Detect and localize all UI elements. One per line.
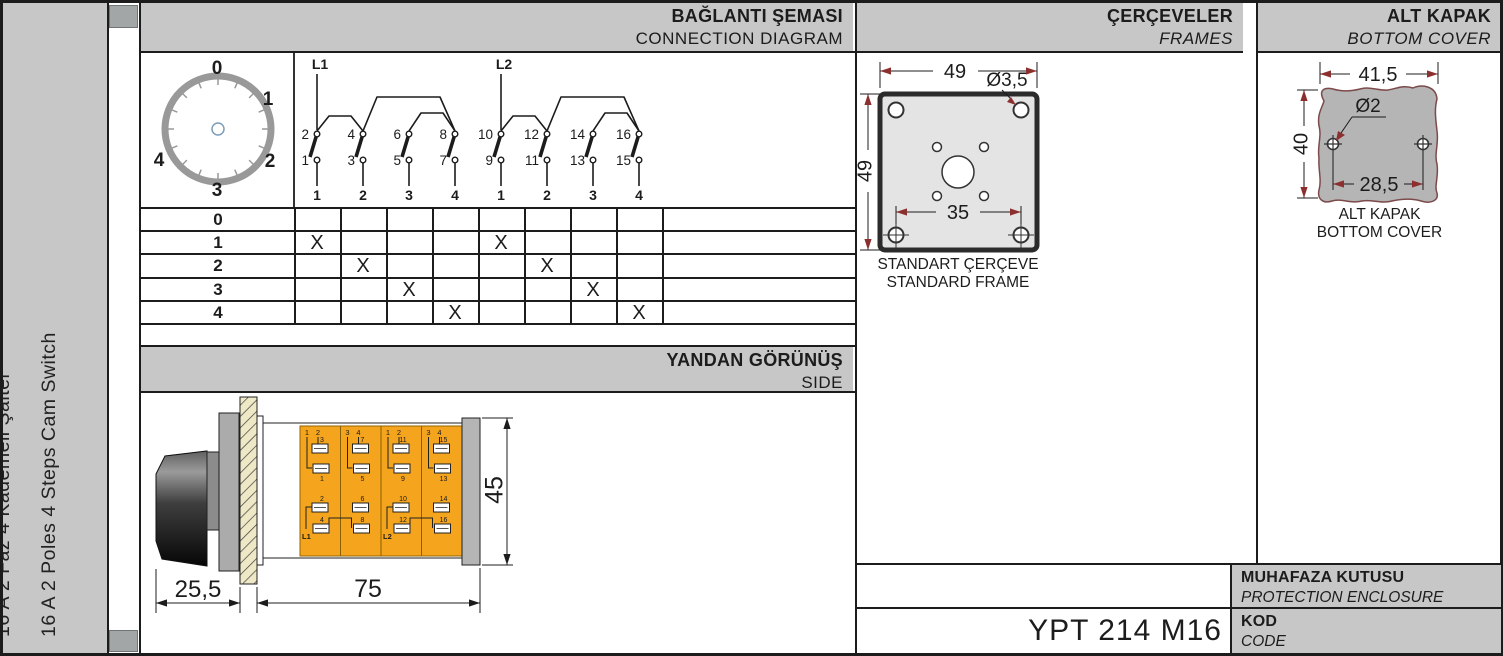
terminal-bottom xyxy=(590,157,596,163)
arrow-up xyxy=(1300,90,1307,101)
terminal-top xyxy=(452,131,458,137)
connection-diagram-drawing: 01234 L1211432653874L2109112112141331615… xyxy=(141,53,855,207)
knob-hub xyxy=(207,452,220,530)
arrow-left xyxy=(1320,70,1331,77)
table-column-line xyxy=(294,207,296,325)
arrow-down xyxy=(864,239,871,250)
terminal-number: 1 xyxy=(320,476,324,483)
table-row-line xyxy=(141,323,855,325)
shaft-hole xyxy=(942,156,974,188)
terminal-number: 2 xyxy=(320,496,324,503)
dial-tick xyxy=(235,83,237,89)
terminal-number-bottom: 3 xyxy=(347,153,355,168)
enclosure-label-cell: MUHAFAZA KUTUSU PROTECTION ENCLOSURE xyxy=(1232,565,1501,607)
terminal-number: 9 xyxy=(401,476,405,483)
frames-title-tr: ÇERÇEVELER xyxy=(857,5,1233,28)
pole-number: 4 xyxy=(635,187,643,203)
connection-diagram-header: BAĞLANTI ŞEMASI CONNECTION DIAGRAM xyxy=(141,3,853,51)
table-position-label: 3 xyxy=(198,279,238,301)
arrow-right xyxy=(1026,67,1037,74)
cover-caption-en: BOTTOM COVER xyxy=(1258,224,1501,242)
cover-caption-tr: ALT KAPAK xyxy=(1258,206,1501,224)
table-column-line xyxy=(524,207,526,325)
terminal-number-top: 2 xyxy=(301,127,309,142)
table-column-line xyxy=(570,207,572,325)
contact-schematic: L1211432653874L21091121121413316154 xyxy=(301,56,643,203)
frames-header: ÇERÇEVELER FRAMES xyxy=(857,3,1243,51)
dim-hole-text: Ø3,5 xyxy=(986,70,1027,91)
product-title-english: 16 A 2 Poles 4 Steps Cam Switch xyxy=(38,332,61,637)
terminal-number: 6 xyxy=(361,496,365,503)
cover-caption: ALT KAPAK BOTTOM COVER xyxy=(1258,206,1501,242)
side-title-tr: YANDAN GÖRÜNÜŞ xyxy=(141,349,843,372)
contact-blade xyxy=(494,136,501,158)
stage-pole-label: 4 xyxy=(437,428,441,437)
dial-tick xyxy=(199,83,201,89)
terminal-number-top: 4 xyxy=(347,127,355,142)
table-row-line xyxy=(141,207,855,209)
frame-caption-en: STANDARD FRAME xyxy=(857,274,1059,292)
terminal-number-bottom: 15 xyxy=(616,153,631,168)
contact-blade xyxy=(586,136,593,158)
corner-hole xyxy=(889,103,904,118)
terminal-number: 15 xyxy=(440,437,448,444)
dial-tick xyxy=(183,94,187,98)
table-row-line xyxy=(141,300,855,302)
terminal-number-bottom: 5 xyxy=(393,153,401,168)
dial-position-label: 0 xyxy=(212,58,223,79)
arrow-down xyxy=(503,554,510,565)
terminal-bottom xyxy=(314,157,320,163)
stage-feed-label: L2 xyxy=(383,532,392,541)
table-closed-mark: X xyxy=(302,231,332,255)
dim-body-text: 75 xyxy=(354,575,382,603)
side-view-drawing: 123124L1347568121191012L23415131416 25,5… xyxy=(141,393,855,652)
pole-number: 1 xyxy=(497,187,505,203)
contact-blade xyxy=(402,136,409,158)
terminal-bottom xyxy=(406,157,412,163)
terminal-top xyxy=(498,131,504,137)
arrow-up xyxy=(864,94,871,105)
terminal-top xyxy=(636,131,642,137)
dial-position-label: 4 xyxy=(154,150,165,171)
connection-title-tr: BAĞLANTI ŞEMASI xyxy=(141,5,843,28)
mounting-panel-hatched xyxy=(240,397,257,584)
contact-blade xyxy=(448,136,455,158)
enclosure-label-en: PROTECTION ENCLOSURE xyxy=(1241,588,1501,607)
dial-ring xyxy=(165,76,271,182)
datasheet-page: { "sidebar": { "line_tr": "16 A 2 Faz 4 … xyxy=(0,0,1503,656)
terminal-number-top: 14 xyxy=(570,127,586,142)
arrow-down xyxy=(1300,187,1307,198)
terminal-number-top: 16 xyxy=(616,127,631,142)
table-column-line xyxy=(662,207,664,325)
contact-blade xyxy=(356,136,363,158)
pilot-hole xyxy=(933,192,942,201)
table-closed-mark: X xyxy=(440,301,470,325)
terminal-number: 4 xyxy=(320,517,324,524)
stage-pole-label: 3 xyxy=(426,428,430,437)
table-position-label: 0 xyxy=(198,209,238,231)
dim-width-text: 49 xyxy=(944,61,966,83)
bottom-cover-title-en: BOTTOM COVER xyxy=(1258,28,1491,49)
terminal-number: 3 xyxy=(320,437,324,444)
pole-number: 1 xyxy=(313,187,321,203)
table-closed-mark: X xyxy=(578,278,608,302)
pole-number: 3 xyxy=(405,187,413,203)
feed-label: L2 xyxy=(496,56,513,72)
stage-pole-label: 4 xyxy=(356,428,360,437)
side-header-topline xyxy=(141,345,855,347)
terminal-number: 12 xyxy=(399,517,407,524)
terminal-number: 11 xyxy=(399,437,406,444)
contact-blade xyxy=(310,136,317,158)
dial-tick xyxy=(235,170,237,176)
dim-width-text: 41,5 xyxy=(1359,64,1398,86)
side-title-en: SIDE xyxy=(141,372,843,393)
table-row-line xyxy=(141,277,855,279)
frame-caption-tr: STANDART ÇERÇEVE xyxy=(857,256,1059,274)
code-label-cell: KOD CODE xyxy=(1232,609,1501,653)
terminal-number: 5 xyxy=(361,476,365,483)
arrow-right xyxy=(469,599,480,606)
terminal-number-bottom: 11 xyxy=(525,153,539,168)
pilot-hole xyxy=(933,143,942,152)
code-label-tr: KOD xyxy=(1241,611,1501,632)
terminal-number: 8 xyxy=(361,517,365,524)
dim-hole-text: Ø2 xyxy=(1355,96,1380,117)
bottom-cover-header: ALT KAPAK BOTTOM COVER xyxy=(1258,3,1501,51)
table-column-line xyxy=(340,207,342,325)
dial-tick xyxy=(259,110,265,112)
table-closed-mark: X xyxy=(624,301,654,325)
table-position-label: 4 xyxy=(198,302,238,324)
terminal-number: 10 xyxy=(399,496,407,503)
stage-pole-label: 3 xyxy=(345,428,349,437)
table-position-label: 2 xyxy=(198,255,238,277)
dial-tick xyxy=(249,94,253,98)
dial-tick xyxy=(172,110,178,112)
dial-tick xyxy=(249,160,253,164)
dial-tick xyxy=(183,160,187,164)
dial-tick xyxy=(259,146,265,148)
spine-square-top xyxy=(109,5,138,28)
dial-position-label: 2 xyxy=(265,151,276,172)
connection-title-en: CONNECTION DIAGRAM xyxy=(141,28,843,49)
table-closed-mark: X xyxy=(394,278,424,302)
terminal-number: 16 xyxy=(440,517,448,524)
dial-position-label: 3 xyxy=(212,180,223,201)
table-closed-mark: X xyxy=(486,231,516,255)
arrow-left xyxy=(156,599,167,606)
side-title-strip: 16 A 2 Faz 4 Kademeli Şalter 16 A 2 Pole… xyxy=(3,3,107,653)
arrow-right xyxy=(1427,70,1438,77)
terminal-top xyxy=(360,131,366,137)
pole-number: 4 xyxy=(451,187,459,203)
stage-pole-label: 1 xyxy=(305,428,309,437)
pilot-hole xyxy=(980,143,989,152)
dim-height-text: 45 xyxy=(481,476,509,504)
arrow-left xyxy=(880,67,891,74)
terminal-number: 13 xyxy=(440,476,448,483)
terminal-bottom xyxy=(636,157,642,163)
table-closed-mark: X xyxy=(348,254,378,278)
terminal-top xyxy=(406,131,412,137)
outer-border-left xyxy=(0,0,3,656)
frames-title-en: FRAMES xyxy=(857,28,1233,49)
stage-pole-label: 2 xyxy=(316,428,320,437)
front-plate xyxy=(219,413,239,571)
table-closed-mark: X xyxy=(532,254,562,278)
pole-number: 3 xyxy=(589,187,597,203)
dial-center-icon xyxy=(212,123,224,135)
terminal-number: 14 xyxy=(440,496,448,503)
arrow-up xyxy=(503,418,510,429)
terminal-number-bottom: 9 xyxy=(485,153,493,168)
jumper-wire xyxy=(317,116,363,131)
dial-position-label: 1 xyxy=(263,89,274,110)
rear-plate xyxy=(462,418,480,565)
terminal-number: 7 xyxy=(361,437,365,444)
terminal-bottom xyxy=(544,157,550,163)
terminal-number-bottom: 1 xyxy=(301,153,309,168)
contact-blade xyxy=(632,136,639,158)
terminal-top xyxy=(590,131,596,137)
dim-knob-text: 25,5 xyxy=(175,576,222,603)
dim-inner-text: 35 xyxy=(947,202,969,224)
terminal-number-top: 12 xyxy=(524,127,539,142)
dim-height-text: 40 xyxy=(1290,133,1312,155)
bottom-cover-title-tr: ALT KAPAK xyxy=(1258,5,1491,28)
pilot-hole xyxy=(980,192,989,201)
dim-inner-text: 28,5 xyxy=(1360,174,1399,196)
stage-pole-label: 2 xyxy=(397,428,401,437)
dial-tick xyxy=(199,170,201,176)
table-column-line xyxy=(386,207,388,325)
spine-square-bottom xyxy=(109,630,138,652)
contact-blade xyxy=(540,136,547,158)
shaft-spacer xyxy=(257,416,263,565)
product-code: YPT 214 M16 xyxy=(860,610,1222,652)
arrow-right xyxy=(229,599,240,606)
code-label-en: CODE xyxy=(1241,632,1501,651)
jumper-wire xyxy=(363,97,455,131)
dial-tick xyxy=(172,146,178,148)
switch-knob xyxy=(156,451,207,566)
bottom-cover-drawing: 41,5 Ø2 40 28,5 xyxy=(1258,53,1501,305)
terminal-top xyxy=(544,131,550,137)
terminal-bottom xyxy=(498,157,504,163)
terminal-top xyxy=(314,131,320,137)
frame-caption: STANDART ÇERÇEVE STANDARD FRAME xyxy=(857,256,1059,292)
table-column-line xyxy=(478,207,480,325)
side-view-header: YANDAN GÖRÜNÜŞ SIDE xyxy=(141,347,853,391)
terminal-number-bottom: 13 xyxy=(570,153,585,168)
pole-number: 2 xyxy=(543,187,551,203)
terminal-number-bottom: 7 xyxy=(439,153,447,168)
table-column-line xyxy=(432,207,434,325)
switching-table: 01XX2XX3XX4XX xyxy=(141,205,855,327)
table-column-line xyxy=(616,207,618,325)
divider-sidebar xyxy=(107,0,109,656)
pole-number: 2 xyxy=(359,187,367,203)
stage-feed-label: L1 xyxy=(302,532,311,541)
arrow-left xyxy=(257,599,268,606)
terminal-bottom xyxy=(452,157,458,163)
terminal-number-top: 8 xyxy=(439,127,447,142)
jumper-wire xyxy=(547,97,639,131)
terminal-bottom xyxy=(360,157,366,163)
stage-pole-label: 1 xyxy=(386,428,390,437)
table-position-label: 1 xyxy=(198,232,238,254)
terminal-number-top: 6 xyxy=(393,127,401,142)
outer-border-top xyxy=(0,0,1503,3)
terminal-number-top: 10 xyxy=(478,127,493,142)
feed-label: L1 xyxy=(312,56,329,72)
dim-height-text: 49 xyxy=(857,160,876,182)
enclosure-label-tr: MUHAFAZA KUTUSU xyxy=(1241,567,1501,588)
rotary-dial: 01234 xyxy=(154,58,276,201)
